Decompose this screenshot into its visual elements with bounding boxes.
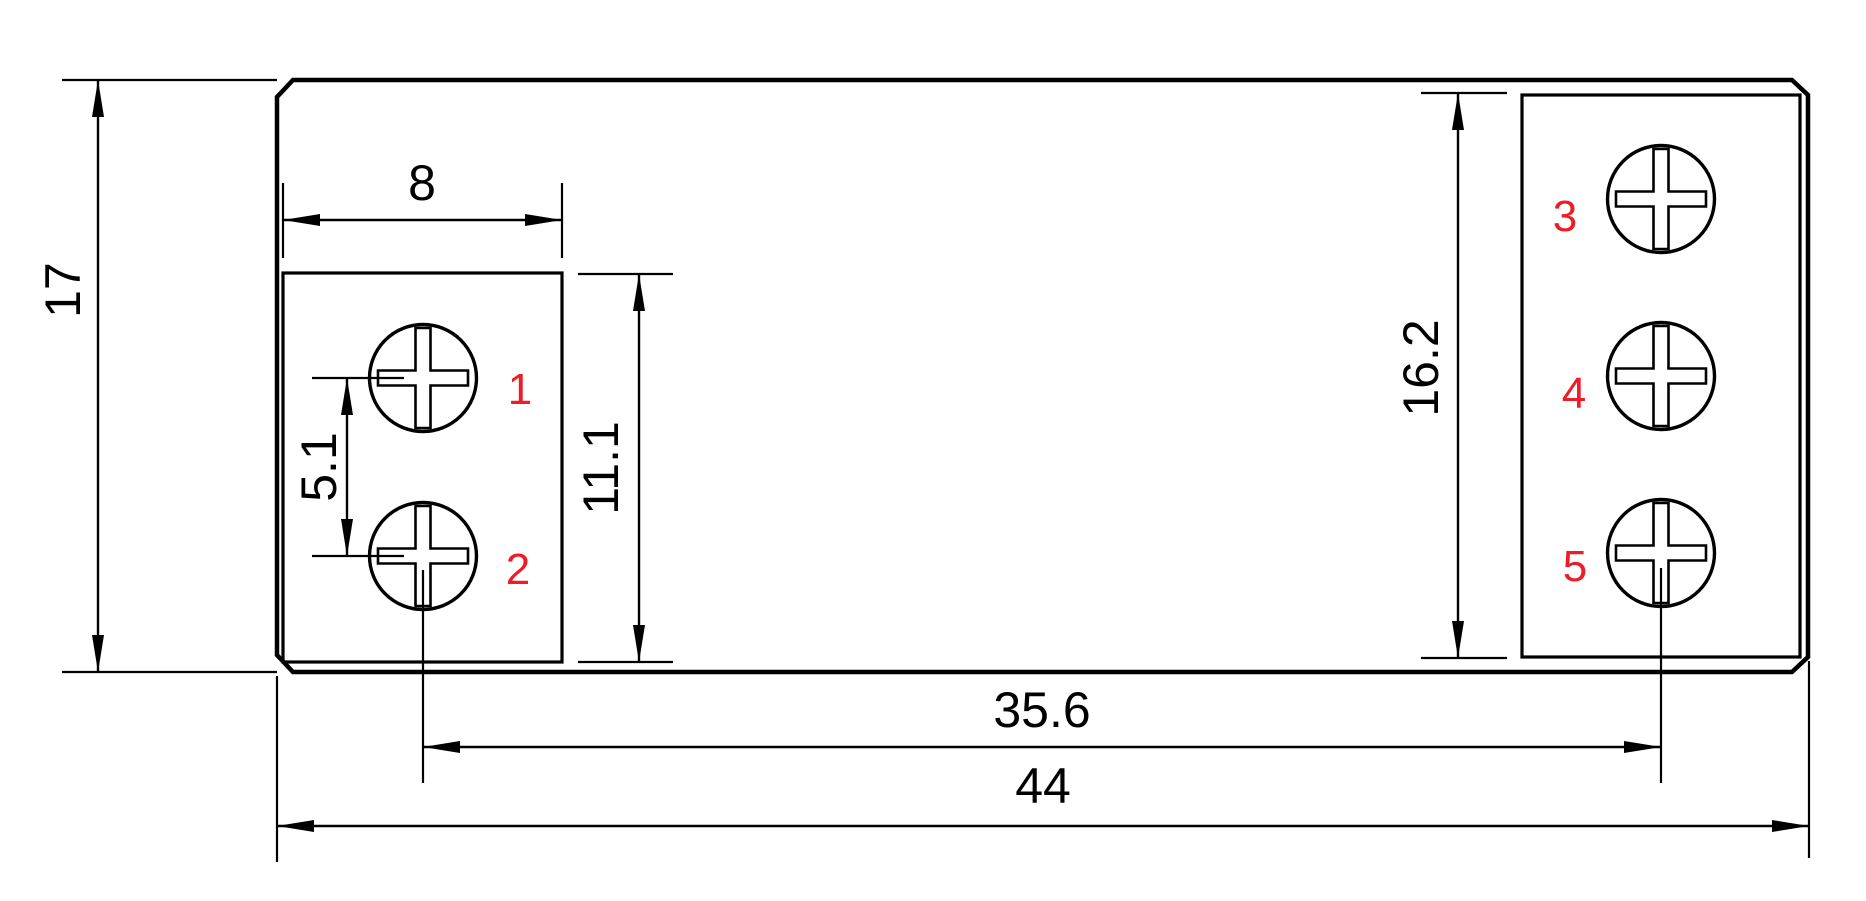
dimension-value: 44 (1015, 758, 1071, 814)
screw-terminal-3 (1608, 146, 1715, 253)
dimension-screw-span: 35.6 (423, 682, 1661, 753)
terminal-1-label: 1 (508, 365, 532, 414)
screw-terminal-4 (1608, 323, 1715, 430)
arrowhead-icon (341, 378, 353, 415)
arrowhead-icon (423, 741, 460, 753)
dimension-value: 11.1 (573, 421, 629, 515)
arrowhead-icon (1772, 820, 1809, 832)
dimension-right-strip-height: 16.2 (1393, 93, 1507, 658)
arrowhead-icon (277, 820, 314, 832)
dimension-value: 16.2 (1393, 319, 1449, 416)
dimension-value: 5.1 (291, 432, 347, 502)
phillips-cross-icon (1616, 326, 1706, 426)
dimension-overall-height: 17 (35, 80, 277, 672)
arrowhead-icon (633, 625, 645, 662)
dimension-left-block-height: 11.1 (573, 274, 673, 662)
terminal-5-label: 5 (1563, 542, 1587, 591)
terminal-2-label: 2 (506, 545, 530, 594)
arrowhead-icon (92, 635, 104, 672)
arrowhead-icon (92, 80, 104, 117)
arrowhead-icon (1452, 93, 1464, 130)
arrowhead-icon (1624, 741, 1661, 753)
dimension-left-screw-pitch: 5.1 (291, 378, 353, 556)
terminal-3-label: 3 (1553, 192, 1577, 241)
dimension-value: 8 (408, 155, 436, 211)
dimension-value: 17 (35, 262, 91, 318)
arrowhead-icon (1452, 621, 1464, 658)
arrowhead-icon (283, 214, 320, 226)
phillips-cross-icon (1616, 149, 1706, 249)
dimension-left-block-width: 8 (283, 155, 562, 258)
arrowhead-icon (525, 214, 562, 226)
arrowhead-icon (633, 274, 645, 311)
arrowhead-icon (341, 519, 353, 556)
dimension-value: 35.6 (993, 682, 1090, 738)
terminal-4-label: 4 (1562, 369, 1586, 418)
drawing-canvas: 17 8 5.1 11.1 (0, 0, 1866, 901)
